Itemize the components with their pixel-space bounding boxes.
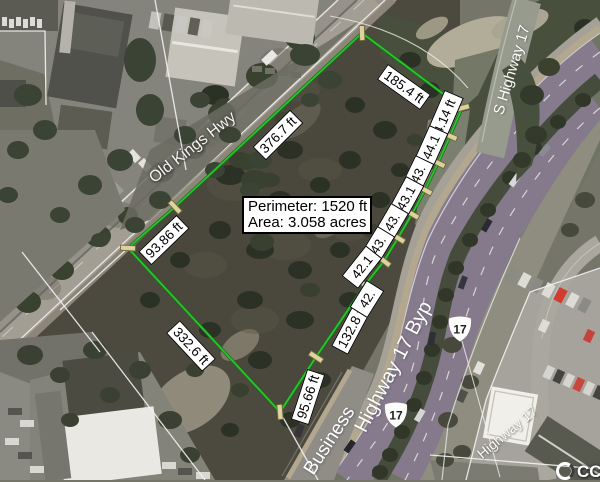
svg-text:17: 17 xyxy=(389,409,403,423)
svg-text:17: 17 xyxy=(453,323,467,337)
